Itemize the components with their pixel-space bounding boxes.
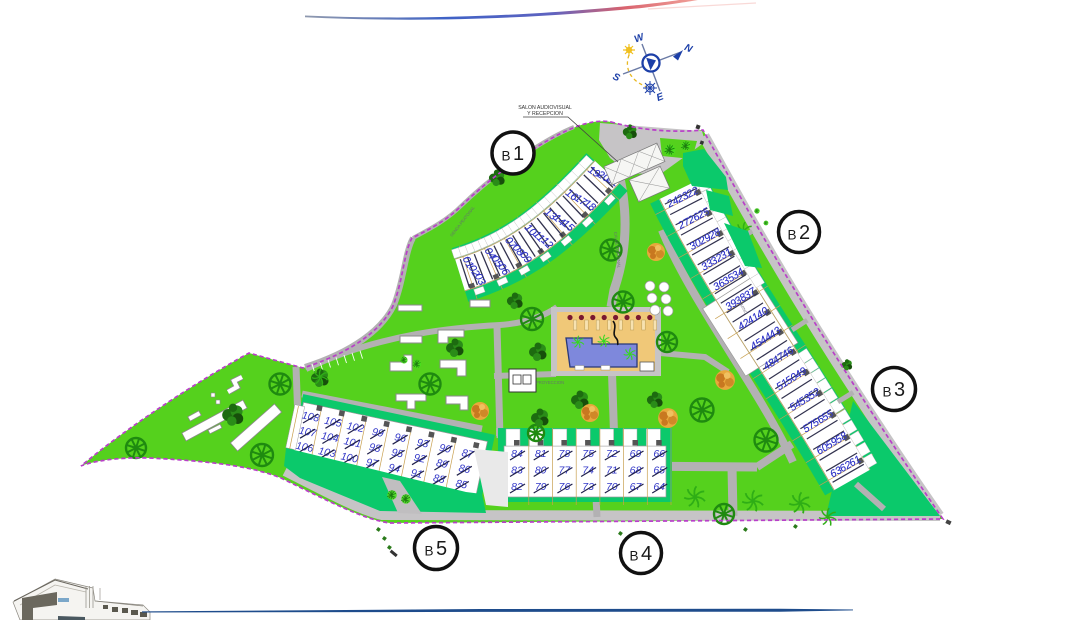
svg-text:5: 5 (436, 538, 447, 560)
svg-text:Y RECEPCION: Y RECEPCION (527, 111, 563, 117)
svg-text:4: 4 (641, 543, 652, 565)
svg-text:B: B (424, 544, 433, 559)
svg-text:2: 2 (799, 222, 810, 244)
svg-text:B: B (629, 549, 638, 564)
svg-text:1: 1 (513, 143, 524, 165)
svg-text:PROYECCION: PROYECCION (536, 380, 564, 385)
svg-text:B: B (787, 228, 796, 243)
svg-text:B: B (501, 149, 510, 164)
svg-text:3: 3 (894, 379, 905, 401)
svg-text:B: B (882, 385, 891, 400)
